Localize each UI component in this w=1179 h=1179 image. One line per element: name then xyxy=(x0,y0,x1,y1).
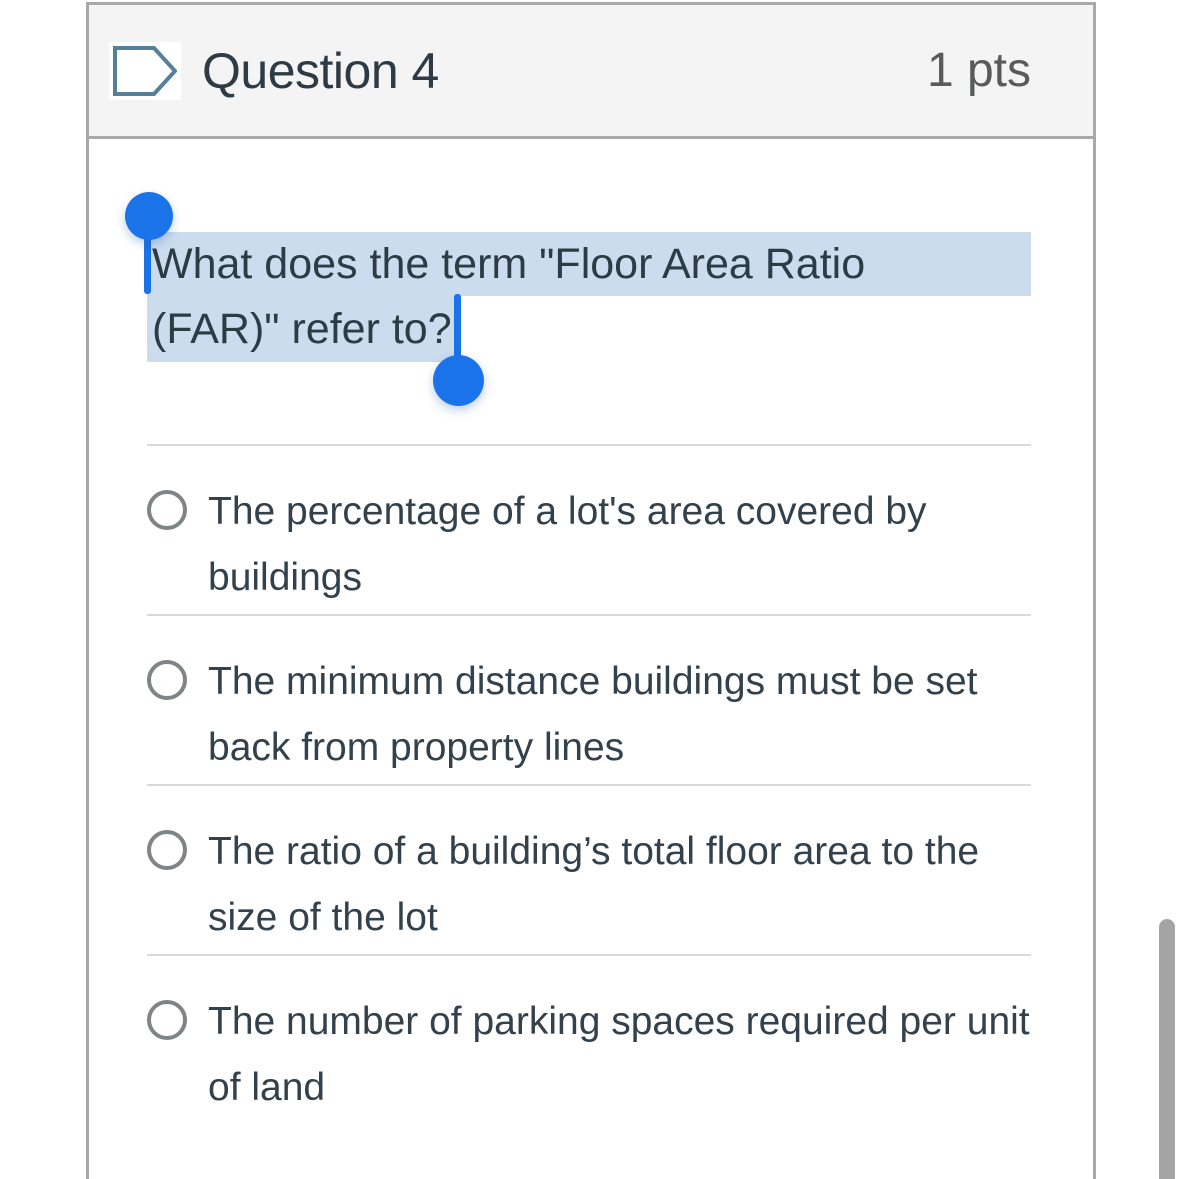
question-text-line1: What does the term "Floor Area Ratio xyxy=(147,232,1031,297)
answer-option-row[interactable]: The percentage of a lot's area covered b… xyxy=(147,444,1031,614)
option-label-2[interactable]: The minimum distance buildings must be s… xyxy=(208,649,1031,781)
answer-option-row[interactable]: The minimum distance buildings must be s… xyxy=(147,614,1031,784)
question-flag-icon[interactable] xyxy=(109,42,181,100)
answer-options: The percentage of a lot's area covered b… xyxy=(147,444,1031,1124)
answer-option-row[interactable]: The ratio of a building’s total floor ar… xyxy=(147,784,1031,954)
question-points-badge: 1 pts xyxy=(927,43,1031,98)
radio-button-option-2[interactable] xyxy=(147,660,187,700)
quiz-page: Question 4 1 pts What does the term "Flo… xyxy=(0,0,1179,1179)
question-text-block: What does the term "Floor Area Ratio (FA… xyxy=(147,232,1031,364)
question-title: Question 4 xyxy=(202,42,439,100)
radio-button-option-3[interactable] xyxy=(147,830,187,870)
selection-caret-end xyxy=(454,294,461,364)
option-label-1[interactable]: The percentage of a lot's area covered b… xyxy=(208,479,1031,611)
answer-option-row[interactable]: The number of parking spaces required pe… xyxy=(147,954,1031,1124)
flag-outline-icon xyxy=(113,46,177,96)
question-card: Question 4 1 pts What does the term "Flo… xyxy=(86,2,1096,1179)
option-label-3[interactable]: The ratio of a building’s total floor ar… xyxy=(208,819,1031,951)
option-label-4[interactable]: The number of parking spaces required pe… xyxy=(208,989,1031,1121)
radio-button-option-1[interactable] xyxy=(147,490,187,530)
question-text-line2: (FAR)" refer to? xyxy=(147,297,1031,362)
selection-handle-end[interactable] xyxy=(433,355,484,406)
selection-handle-start[interactable] xyxy=(125,192,173,240)
question-header: Question 4 1 pts xyxy=(89,5,1093,139)
radio-button-option-4[interactable] xyxy=(147,1000,187,1040)
vertical-scrollbar-thumb[interactable] xyxy=(1159,919,1175,1179)
